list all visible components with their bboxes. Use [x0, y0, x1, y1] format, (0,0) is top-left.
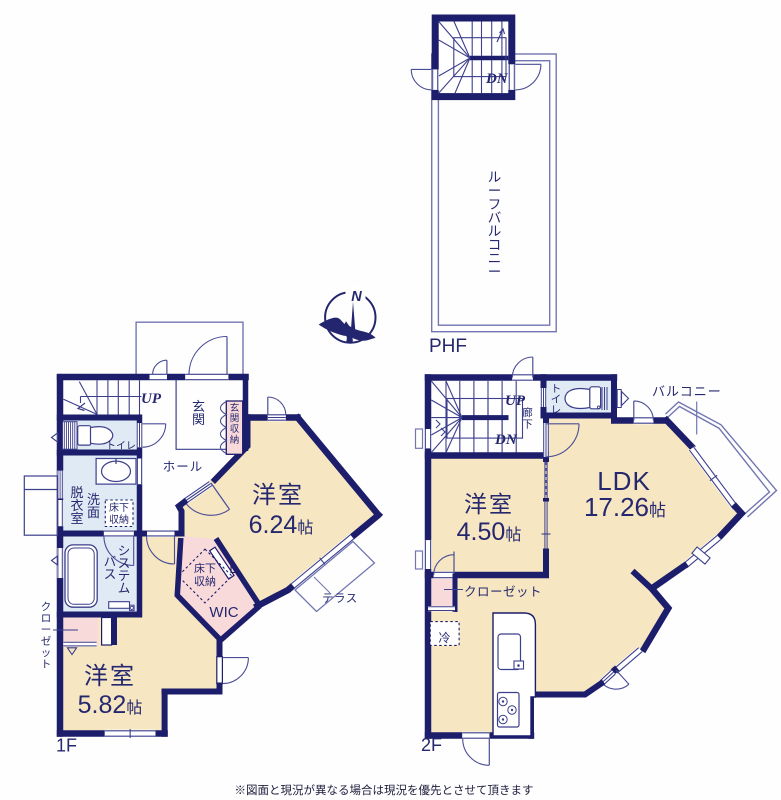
svg-text:収納: 収納 [194, 575, 216, 588]
svg-text:ホール: ホール [163, 460, 204, 474]
svg-text:室: 室 [70, 511, 83, 526]
svg-text:面: 面 [87, 505, 100, 520]
svg-text:UP: UP [141, 391, 162, 407]
svg-text:収: 収 [230, 423, 240, 435]
svg-text:ゼ: ゼ [41, 636, 52, 648]
svg-text:洋室: 洋室 [464, 491, 514, 517]
svg-text:洋室: 洋室 [252, 482, 304, 509]
svg-text:下: 下 [522, 419, 533, 431]
svg-text:床下: 床下 [194, 561, 216, 575]
svg-text:バルコニー: バルコニー [652, 384, 722, 399]
svg-text:玄: 玄 [230, 402, 240, 414]
svg-text:N: N [351, 289, 362, 305]
svg-text:廊: 廊 [522, 406, 533, 419]
svg-text:関: 関 [192, 412, 205, 427]
svg-text:ロ: ロ [41, 613, 52, 625]
svg-text:クローゼット: クローゼット [464, 585, 542, 599]
svg-text:ト: ト [41, 659, 52, 671]
svg-text:ク: ク [41, 601, 52, 613]
svg-text:ム: ム [118, 582, 131, 596]
svg-text:PHF: PHF [429, 336, 467, 357]
svg-text:関: 関 [230, 414, 240, 425]
svg-text:床下: 床下 [109, 501, 129, 514]
svg-text:DN: DN [494, 432, 518, 448]
svg-text:ー: ー [41, 624, 52, 636]
svg-text:納: 納 [230, 434, 240, 446]
svg-text:トイレ: トイレ [106, 441, 136, 452]
svg-text:ッ: ッ [41, 647, 52, 659]
svg-text:2F: 2F [421, 735, 442, 755]
svg-text:洋室: 洋室 [84, 663, 136, 690]
svg-text:ー: ー [488, 265, 502, 280]
svg-text:※図面と現況が異なる場合は現況を優先とさせて頂きます: ※図面と現況が異なる場合は現況を優先とさせて頂きます [235, 783, 534, 797]
svg-text:ス: ス [104, 568, 117, 582]
svg-text:冷: 冷 [438, 631, 450, 645]
svg-text:DN: DN [485, 71, 509, 87]
svg-text:収納: 収納 [109, 513, 129, 526]
svg-text:テラス: テラス [322, 593, 358, 605]
svg-text:1F: 1F [56, 736, 77, 756]
svg-text:レ: レ [551, 404, 562, 416]
svg-text:WIC: WIC [209, 604, 238, 621]
